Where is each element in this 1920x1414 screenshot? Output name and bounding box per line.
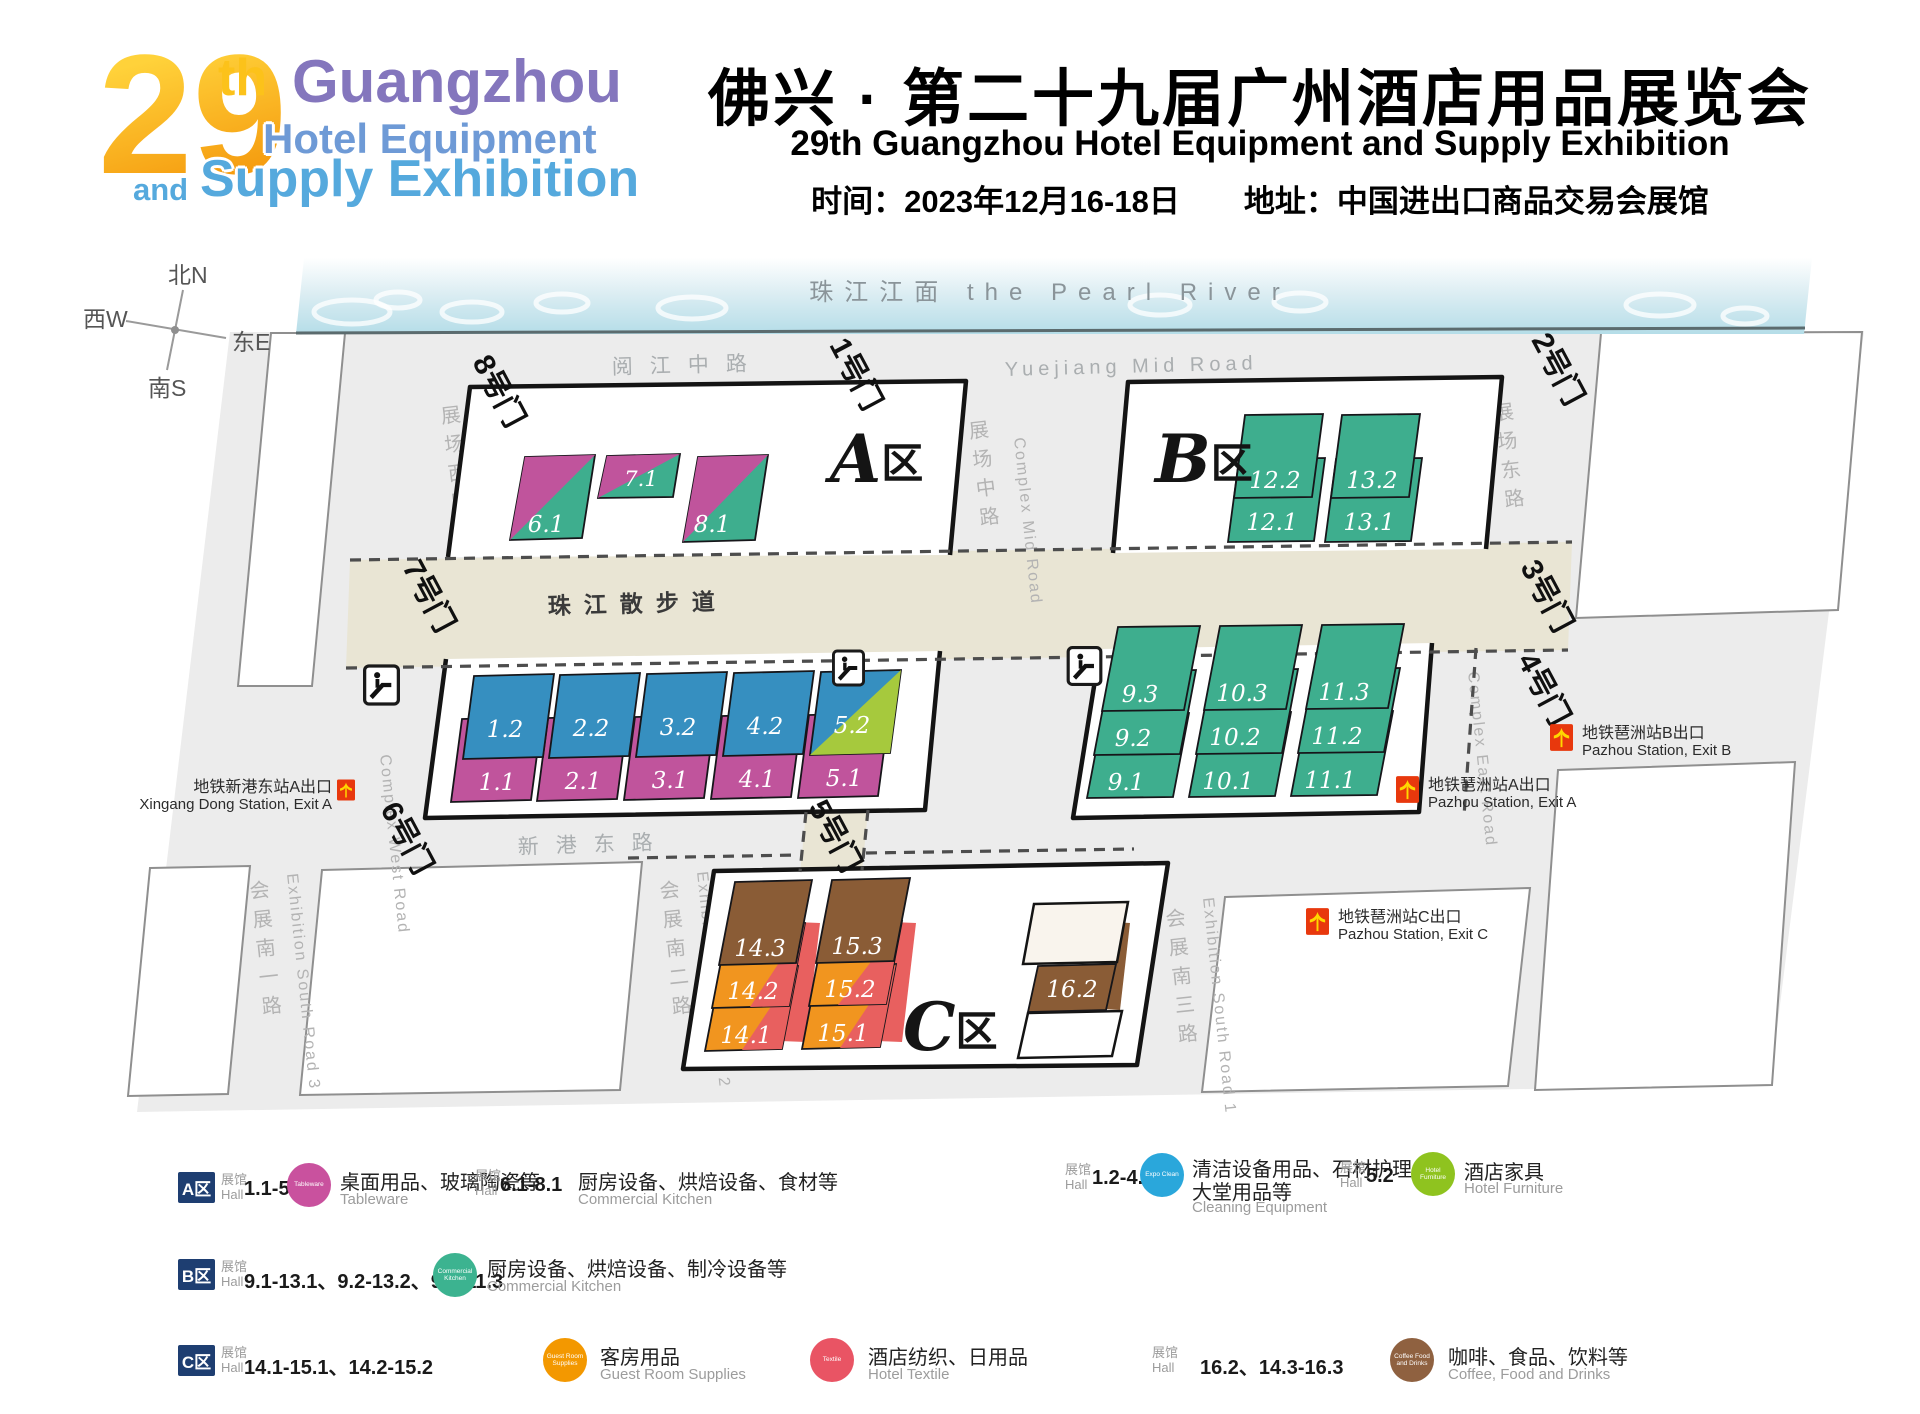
metro-label-cn: 地铁琶洲站B出口 bbox=[1582, 724, 1705, 742]
legend-category-en: Tableware bbox=[340, 1191, 408, 1208]
venue-map: 珠江江面 the Pearl River 阅江中路 Yuejiang Mid R… bbox=[0, 228, 1920, 1148]
road-yuejiang-cn: 阅江中路 bbox=[612, 352, 765, 379]
hall-number: 10.1 bbox=[1202, 769, 1253, 795]
legend-halls: 16.2、14.3-16.3 bbox=[1200, 1351, 1343, 1380]
road-promenade: 珠江散步道 bbox=[547, 588, 728, 619]
hall-number: 1.1 bbox=[479, 770, 516, 796]
city-block-southwest bbox=[128, 866, 250, 1096]
hall-word: 展馆Hall bbox=[1340, 1160, 1366, 1190]
legend-halls: 14.1-15.1、14.2-15.2 bbox=[244, 1351, 433, 1380]
hall-number: 7.1 bbox=[624, 467, 657, 491]
metro-icon bbox=[337, 780, 355, 801]
legend-halls: 6.1-8.1 bbox=[500, 1174, 562, 1197]
metro-label-en: Pazhou Station, Exit B bbox=[1582, 742, 1731, 759]
event-time: 时间：2023年12月16-18日 bbox=[811, 184, 1180, 219]
logo-th: th bbox=[218, 52, 267, 104]
hall-number: 13.2 bbox=[1346, 468, 1397, 494]
city-block-southeast bbox=[1535, 762, 1795, 1090]
hall-number: 15.2 bbox=[824, 977, 875, 1003]
compass-east: 东E bbox=[232, 329, 270, 355]
event-info: 时间：2023年12月16-18日地址：中国进出口商品交易会展馆 bbox=[700, 176, 1820, 221]
guest-room-icon: Guest Room Supplies bbox=[543, 1338, 587, 1382]
zone-a-lower-halls: 1.1 2.1 3.1 4.1 5.1 1.2 2.2 3.2 4.2 5.2 bbox=[451, 670, 901, 802]
hall-16-upper bbox=[1023, 902, 1128, 964]
escalator-icon bbox=[833, 651, 863, 685]
hall-number: 4.2 bbox=[746, 714, 784, 740]
page: 29 th Guangzhou Hotel Equipment and Supp… bbox=[0, 0, 1920, 1414]
hall-number: 5.1 bbox=[826, 766, 863, 792]
logo-supply-exhibition: Supply Exhibition bbox=[200, 153, 639, 205]
hotel-furniture-icon: Hotel Furniture bbox=[1411, 1152, 1455, 1196]
legend-category-en: Coffee, Food and Drinks bbox=[1448, 1366, 1610, 1383]
logo-guangzhou: Guangzhou bbox=[292, 52, 622, 112]
commercial-kitchen-icon: Commercial Kitchen bbox=[433, 1253, 477, 1297]
hall-number: 11.3 bbox=[1318, 680, 1369, 706]
hall-number: 4.1 bbox=[738, 767, 776, 793]
legend-category-en: Hotel Textile bbox=[868, 1366, 949, 1383]
metro-label-en: Xingang Dong Station, Exit A bbox=[139, 796, 332, 813]
metro-label-cn: 地铁琶洲站C出口 bbox=[1338, 908, 1462, 926]
metro-label-cn: 地铁琶洲站A出口 bbox=[1428, 776, 1551, 794]
logo-and: and bbox=[133, 174, 188, 205]
metro-label-en: Pazhou Station, Exit C bbox=[1338, 926, 1488, 943]
hall-number: 6.1 bbox=[528, 512, 565, 538]
hall-number: 14.2 bbox=[727, 979, 778, 1005]
compass-south: 南S bbox=[148, 375, 186, 401]
city-block-south-mid bbox=[300, 862, 642, 1095]
textile-icon: Textile bbox=[810, 1338, 854, 1382]
hall-number: 9.1 bbox=[1108, 770, 1145, 796]
legend-category-en: Hotel Furniture bbox=[1464, 1180, 1563, 1197]
metro-label-cn: 地铁新港东站A出口 bbox=[193, 778, 332, 796]
compass-north: 北N bbox=[168, 262, 208, 288]
hall-number: 1.2 bbox=[487, 717, 524, 743]
compass-west: 西W bbox=[83, 306, 128, 332]
hall-number: 8.1 bbox=[694, 512, 731, 538]
hall-number: 9.3 bbox=[1122, 682, 1159, 708]
hall-number: 9.2 bbox=[1115, 726, 1152, 752]
tableware-icon: Tableware bbox=[287, 1163, 331, 1207]
metro-icon bbox=[1550, 724, 1573, 751]
hall-number: 11.2 bbox=[1311, 724, 1362, 750]
hall-number: 3.2 bbox=[660, 715, 697, 741]
metro-icon bbox=[1396, 776, 1419, 803]
hall-number: 16.2 bbox=[1046, 977, 1097, 1003]
hall-number: 15.3 bbox=[831, 934, 882, 960]
city-block-east-upper bbox=[1576, 332, 1862, 618]
hall-number: 12.1 bbox=[1246, 510, 1297, 536]
hall-number: 14.1 bbox=[720, 1023, 771, 1049]
legend-badge-c: C区 bbox=[178, 1345, 215, 1376]
hall-number: 12.2 bbox=[1249, 468, 1300, 494]
metro-xingangdong-a: 地铁新港东站A出口 Xingang Dong Station, Exit A bbox=[139, 778, 355, 813]
legend-badge-a: A区 bbox=[178, 1172, 215, 1203]
hall-number: 11.1 bbox=[1304, 768, 1355, 794]
legend-category-en: Commercial Kitchen bbox=[578, 1191, 712, 1208]
hall-number: 14.3 bbox=[734, 936, 785, 962]
event-address: 地址：中国进出口商品交易会展馆 bbox=[1244, 184, 1709, 219]
hall-number: 2.2 bbox=[572, 716, 610, 742]
hall-number: 5.2 bbox=[834, 713, 871, 739]
pearl-river: 珠江江面 the Pearl River bbox=[296, 258, 1812, 334]
hall-number: 3.1 bbox=[652, 768, 689, 794]
hall-number: 10.2 bbox=[1209, 725, 1260, 751]
escalator-icon bbox=[1068, 648, 1101, 685]
hall-word: 展馆Hall bbox=[1065, 1162, 1091, 1192]
legend-halls: 5.2 bbox=[1366, 1165, 1394, 1188]
metro-icon bbox=[1306, 908, 1329, 935]
legend-category-en: Commercial Kitchen bbox=[487, 1278, 621, 1295]
hall-number: 13.1 bbox=[1343, 510, 1394, 536]
hall-word: 展馆Hall bbox=[475, 1168, 501, 1198]
hall-number: 15.1 bbox=[817, 1021, 868, 1047]
metro-label-en: Pazhou Station, Exit A bbox=[1428, 794, 1576, 811]
legend-category-en: Cleaning Equipment bbox=[1192, 1199, 1327, 1216]
escalator-icon bbox=[365, 666, 399, 704]
page-title-en: 29th Guangzhou Hotel Equipment and Suppl… bbox=[700, 124, 1820, 164]
hall-number: 10.3 bbox=[1216, 681, 1267, 707]
event-logo: 29 th Guangzhou Hotel Equipment and Supp… bbox=[0, 0, 660, 240]
zone-b-lower-halls: 9.3 10.3 11.3 9.2 10.2 11.2 9.1 10.1 11.… bbox=[1087, 624, 1404, 798]
expo-clean-icon: Expo Clean bbox=[1140, 1153, 1184, 1197]
coffee-icon: Coffee Food and Drinks bbox=[1390, 1338, 1434, 1382]
legend-badge-b: B区 bbox=[178, 1259, 215, 1290]
hall-16-lower bbox=[1018, 1011, 1122, 1058]
river-label: 珠江江面 the Pearl River bbox=[809, 279, 1290, 306]
hall-word: 展馆Hall bbox=[1152, 1345, 1178, 1375]
hall-number: 2.1 bbox=[564, 769, 602, 795]
legend-category-en: Guest Room Supplies bbox=[600, 1366, 746, 1383]
